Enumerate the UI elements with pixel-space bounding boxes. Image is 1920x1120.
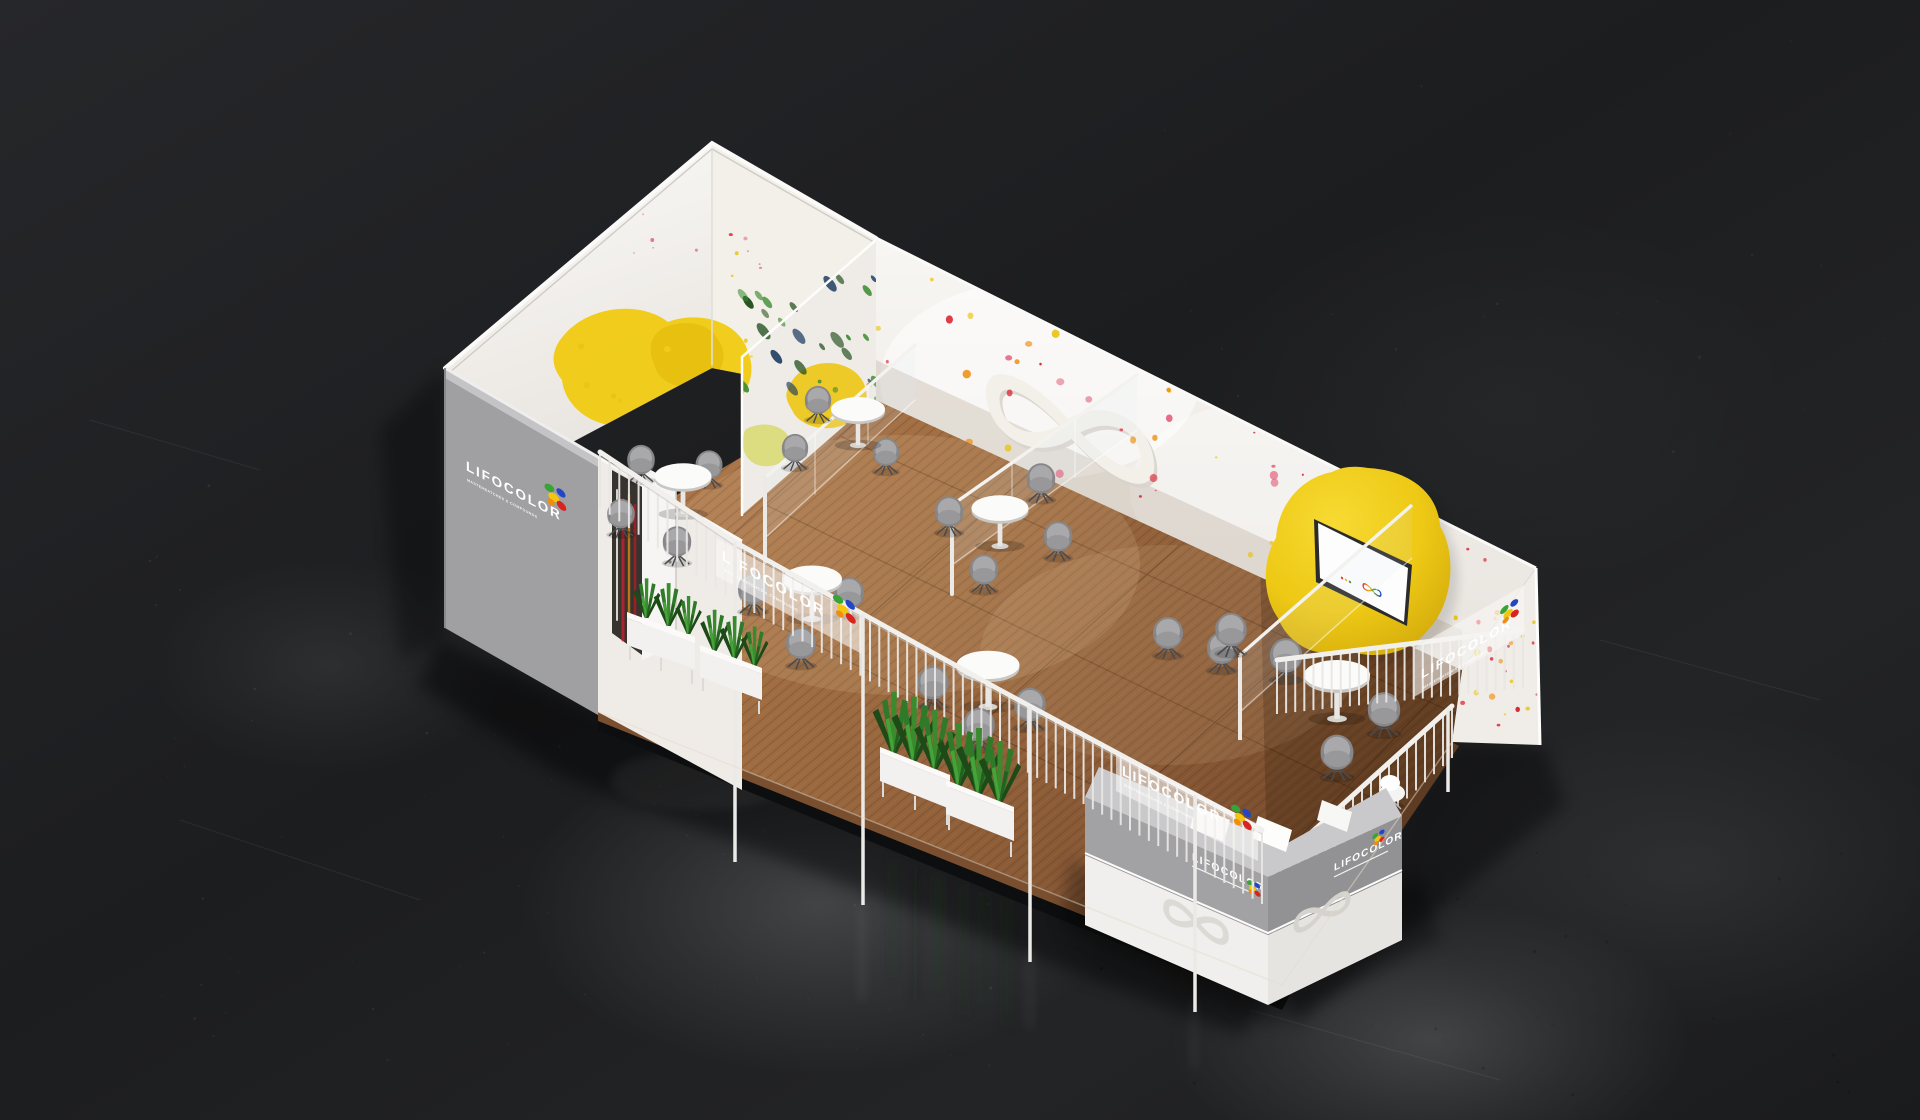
booth-render: LIFOCOLOR MASTERBATCHES & COMPOUNDS xyxy=(0,0,1920,1120)
